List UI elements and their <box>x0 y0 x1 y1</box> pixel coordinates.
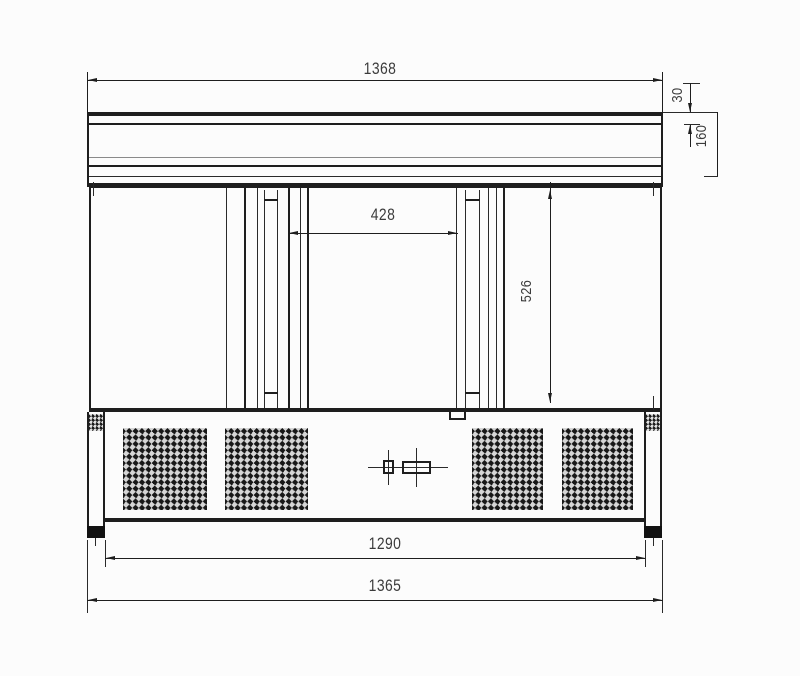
mullion-line <box>456 188 457 408</box>
door-stop-notch <box>449 411 466 420</box>
tick <box>653 182 654 196</box>
mullion-line <box>496 188 497 408</box>
mullion-line <box>307 188 309 408</box>
mullion-line <box>226 188 227 408</box>
dimension-label: 1365 <box>360 576 409 596</box>
dimension-label: 160 <box>692 111 712 162</box>
vent-grille-4 <box>562 428 633 510</box>
extension-line <box>662 72 663 112</box>
dimension-label: 30 <box>668 70 688 121</box>
mullion-line <box>300 188 301 408</box>
dimension-line <box>87 600 663 601</box>
vent-grille-1 <box>123 428 207 510</box>
arrowhead <box>548 393 552 402</box>
left-foot <box>87 526 105 538</box>
right-foot <box>644 526 662 538</box>
arrowhead <box>88 78 97 82</box>
hinge-pillar-line <box>264 190 265 408</box>
extension-line <box>662 540 663 613</box>
hinge-pillar-line <box>465 190 466 408</box>
foot-stem <box>653 538 654 546</box>
arrowhead <box>653 598 662 602</box>
arrowhead <box>289 231 298 235</box>
fitting-square <box>383 460 394 474</box>
front-rail-line <box>89 165 661 167</box>
mullion-line <box>288 188 290 408</box>
arrowhead <box>88 598 97 602</box>
left-hinge-bracket <box>89 414 103 431</box>
dimension-line <box>105 558 645 559</box>
dimension-line <box>288 233 458 234</box>
dimension-line <box>87 80 663 81</box>
dimension-label: 526 <box>517 266 537 317</box>
hinge-pillar-line <box>277 190 278 408</box>
dimension-line <box>550 182 551 403</box>
dimension-label: 428 <box>358 205 407 225</box>
extension-line <box>645 540 646 567</box>
hinge-pillar-cap <box>465 392 480 394</box>
arrowhead <box>653 78 662 82</box>
front-rail-line <box>89 157 661 158</box>
front-rail-line <box>89 176 661 177</box>
arrowhead <box>636 556 645 560</box>
arrowhead <box>448 231 457 235</box>
tick <box>93 182 94 196</box>
dimension-line <box>717 112 718 177</box>
vent-grille-3 <box>472 428 543 510</box>
mullion-line <box>257 188 258 408</box>
fitting-body <box>402 461 431 474</box>
dimension-label: 1368 <box>355 59 404 79</box>
arrowhead <box>548 190 552 199</box>
worktop-underside-line <box>89 123 661 125</box>
mullion-line <box>488 188 489 408</box>
hinge-pillar-line <box>479 190 480 408</box>
hinge-pillar-cap <box>264 392 278 394</box>
technical-drawing-canvas: 1368 30 160 <box>0 0 800 676</box>
arrowhead <box>106 556 115 560</box>
tick <box>704 176 718 177</box>
foot-stem <box>95 538 96 546</box>
right-hinge-bracket <box>646 414 660 431</box>
mullion-line <box>244 188 246 408</box>
dimension-label: 1290 <box>360 534 409 554</box>
hinge-pillar-cap <box>465 199 480 201</box>
vent-grille-2 <box>225 428 308 510</box>
extension-line <box>105 540 106 567</box>
mullion-line <box>503 188 505 408</box>
tick <box>653 396 654 410</box>
hinge-pillar-cap <box>264 199 278 201</box>
extension-line <box>87 540 88 613</box>
